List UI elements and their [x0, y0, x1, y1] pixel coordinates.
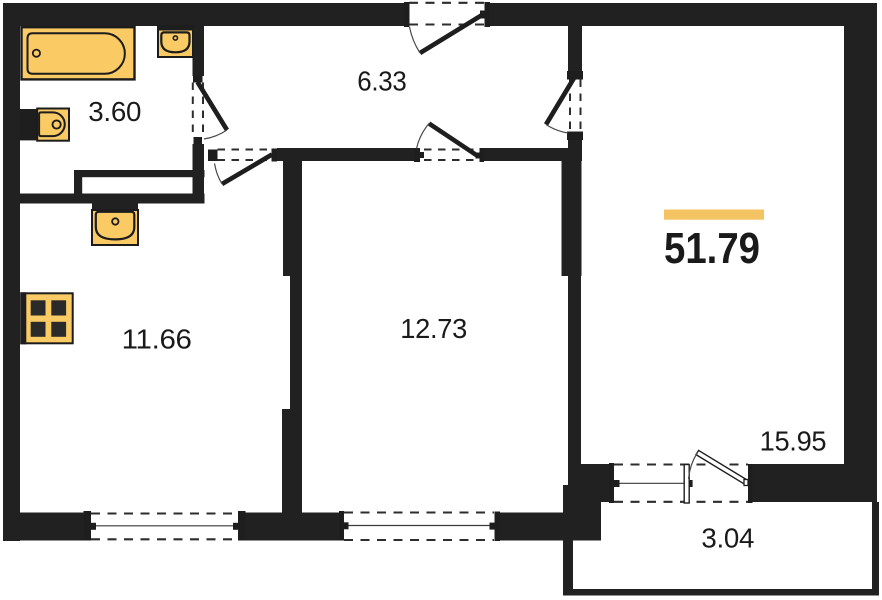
svg-text:15.95: 15.95 — [760, 426, 827, 457]
svg-text:51.79: 51.79 — [664, 224, 760, 273]
svg-text:6.33: 6.33 — [357, 66, 406, 97]
svg-text:11.66: 11.66 — [122, 324, 192, 355]
svg-text:3.04: 3.04 — [701, 523, 754, 554]
svg-text:12.73: 12.73 — [400, 313, 467, 344]
svg-text:3.60: 3.60 — [88, 96, 141, 127]
